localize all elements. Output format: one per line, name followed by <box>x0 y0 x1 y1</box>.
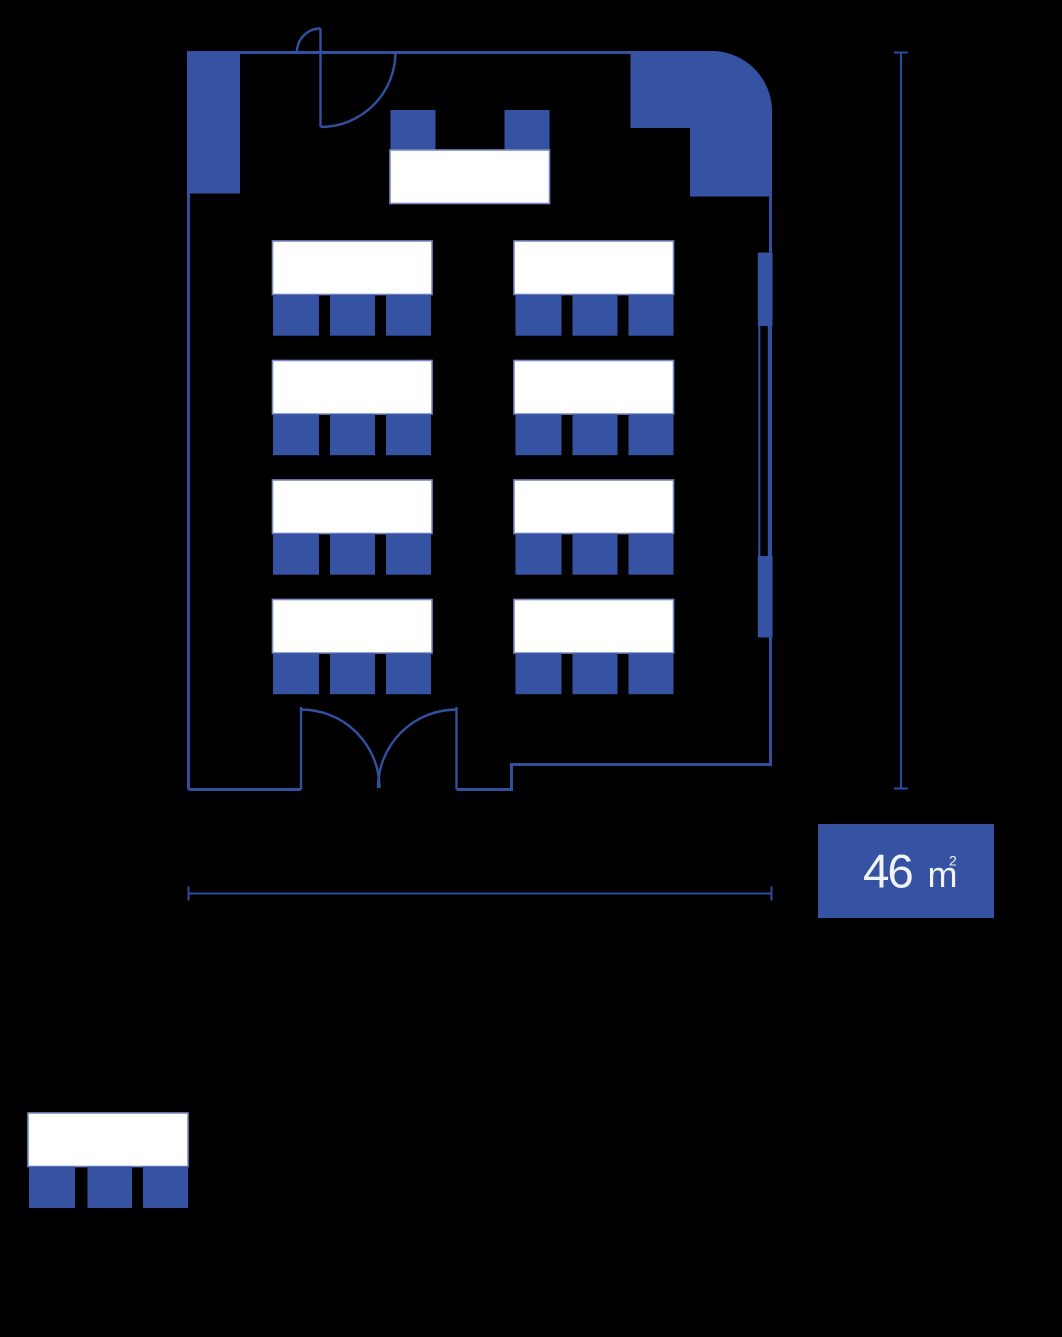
svg-text:46: 46 <box>863 846 912 899</box>
svg-text:2: 2 <box>949 853 957 869</box>
